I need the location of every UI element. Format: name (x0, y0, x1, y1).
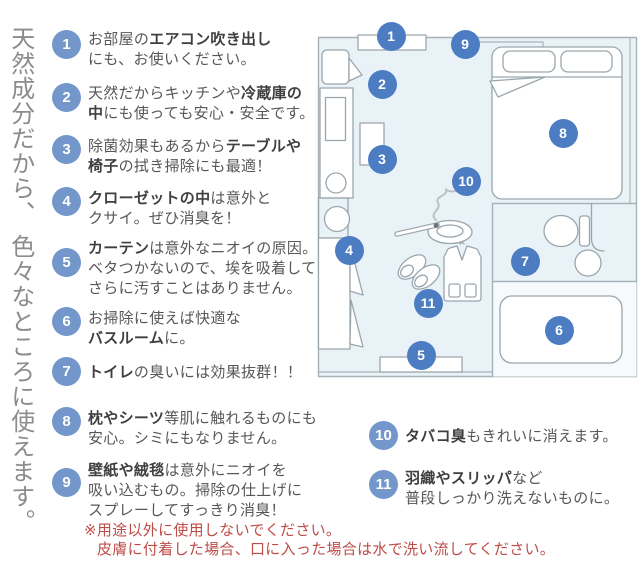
item-number-badge: 6 (52, 307, 81, 336)
usage-item: 7トイレの臭いには効果抜群！！ (52, 363, 302, 383)
item-number-badge: 9 (52, 468, 81, 497)
item-text: 天然だからキッチンや冷蔵庫の中にも使っても安心・安全です。 (88, 84, 302, 124)
usage-item: 10タバコ臭もきれいに消えます。 (369, 427, 619, 447)
item-number-badge: 10 (369, 421, 398, 450)
item-text: クローゼットの中は意外とクサイ。ぜひ消臭を！ (88, 189, 302, 229)
plan-marker: 1 (377, 22, 406, 51)
plan-marker: 5 (407, 341, 436, 370)
plan-marker: 4 (335, 236, 364, 265)
item-number-badge: 4 (52, 187, 81, 216)
item-number-badge: 7 (52, 357, 81, 386)
pillow (561, 51, 612, 72)
pillow (503, 51, 555, 72)
stove (326, 98, 346, 141)
warning-line: 皮膚に付着した場合、口に入った場合は水で洗い流してください。 (84, 540, 555, 559)
item-number-badge: 8 (52, 407, 81, 436)
usage-item: 1お部屋のエアコン吹き出しにも、お使いください。 (52, 30, 302, 70)
item-text: 羽織やスリッパなど普段しっかり洗えないものに。 (405, 469, 619, 509)
vertical-title: 天然成分だから、 色々なところに使えます。 (5, 26, 34, 556)
warning-line: ※用途以外に使用しないでください。 (84, 521, 555, 540)
item-text: 除菌効果もあるからテーブルや椅子の拭き掃除にも最適！ (88, 137, 302, 177)
item-number-badge: 2 (52, 83, 81, 112)
item-number-badge: 3 (52, 135, 81, 164)
item-number-badge: 11 (369, 470, 398, 499)
usage-item: 3除菌効果もあるからテーブルや椅子の拭き掃除にも最適！ (52, 137, 302, 177)
plan-marker: 7 (511, 247, 540, 276)
usage-item: 2天然だからキッチンや冷蔵庫の中にも使っても安心・安全です。 (52, 84, 302, 124)
usage-item: 4クローゼットの中は意外とクサイ。ぜひ消臭を！ (52, 189, 302, 229)
item-text: お掃除に使えば快適なバスルームに。 (88, 309, 302, 349)
usage-item: 6お掃除に使えば快適なバスルームに。 (52, 309, 302, 349)
item-text: 壁紙や絨毯は意外にニオイを吸い込むもの。掃除の仕上げにスプレーしてすっきり消臭！ (88, 461, 302, 521)
kitchen-sink (326, 173, 346, 193)
plan-marker: 8 (549, 119, 578, 148)
warning-note: ※用途以外に使用しないでください。 皮膚に付着した場合、口に入った場合は水で洗い… (84, 521, 555, 559)
usage-item: 9壁紙や絨毯は意外にニオイを吸い込むもの。掃除の仕上げにスプレーしてすっきり消臭… (52, 461, 302, 521)
item-text: タバコ臭もきれいに消えます。 (405, 427, 619, 447)
item-text: 枕やシーツ等肌に触れるものにも安心。シミにもなりません。 (88, 409, 302, 449)
floor-plan (315, 30, 640, 380)
item-text: トイレの臭いには効果抜群！！ (88, 363, 302, 383)
usage-item: 8枕やシーツ等肌に触れるものにも安心。シミにもなりません。 (52, 409, 302, 449)
item-text: お部屋のエアコン吹き出しにも、お使いください。 (88, 30, 302, 70)
usage-item: 11羽織やスリッパなど普段しっかり洗えないものに。 (369, 469, 619, 509)
plan-marker: 9 (451, 30, 480, 59)
plan-marker: 10 (452, 167, 481, 196)
item-number-badge: 1 (52, 30, 81, 59)
infographic-page: 天然成分だから、 色々なところに使えます。 1お部屋のエアコン吹き出しにも、お使… (0, 0, 640, 572)
plan-marker: 2 (368, 70, 397, 99)
item-number-badge: 5 (52, 248, 81, 277)
plan-marker: 3 (368, 145, 397, 174)
item-text: カーテンは意外なニオイの原因。ベタつかないので、埃を吸着してさらに汚すことはあり… (88, 239, 302, 299)
usage-item: 5カーテンは意外なニオイの原因。ベタつかないので、埃を吸着してさらに汚すことはあ… (52, 239, 302, 299)
kitchen-counter (320, 88, 353, 198)
bathroom-sink (575, 250, 601, 276)
plan-marker: 6 (545, 316, 574, 345)
plan-marker: 11 (414, 289, 443, 318)
